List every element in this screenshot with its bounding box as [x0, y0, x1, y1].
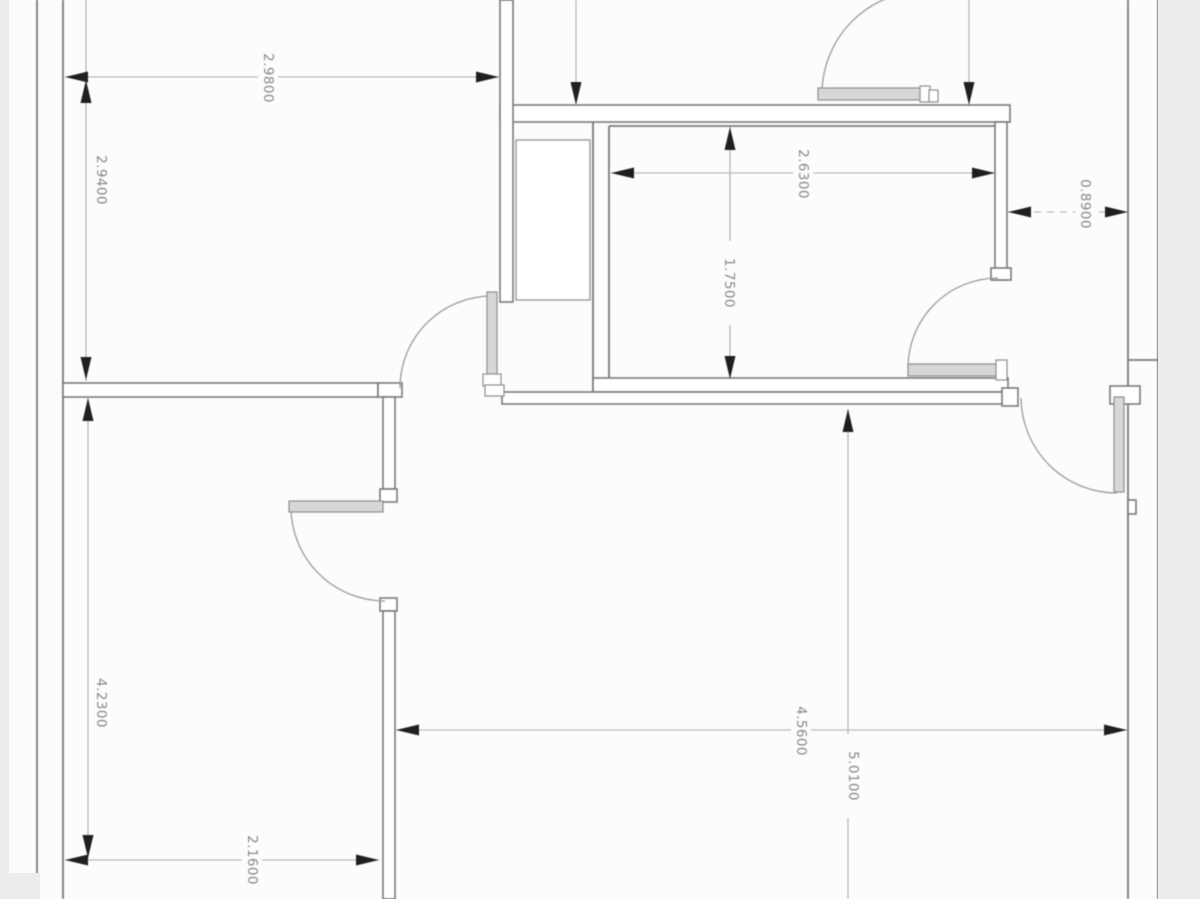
door-bedroom1-hinge-block-1 — [485, 385, 504, 396]
dim-top-room-width-label: 2.9800 — [260, 53, 276, 103]
drawing-background — [0, 0, 1200, 899]
door-bathroom-leaf — [908, 364, 998, 376]
door-bedroom1-hinge-block-0 — [483, 374, 501, 386]
middle-vertical-wall-lower — [383, 611, 395, 899]
dim-bathroom-width-label: 2.6300 — [795, 149, 811, 199]
dim-bedroom2-height-label: 4.2300 — [93, 678, 109, 728]
dim-bathroom-height-label: 1.7500 — [721, 258, 737, 308]
dim-bedroom2-width-label: 2.1600 — [244, 835, 260, 885]
top-vertical-wall — [500, 0, 513, 302]
paper-edge-right — [1158, 0, 1200, 899]
door-bedroom1-leaf — [487, 292, 497, 384]
bathroom-bottom-wall — [593, 378, 1008, 392]
paper-edge-left — [0, 0, 9, 899]
bedroom1-bottom-wall — [63, 383, 378, 397]
door-bedroom2-leaf — [289, 501, 383, 512]
dim-side-gap-label: 0.8900 — [1077, 179, 1093, 229]
corridor-wall-right-jamb — [1002, 388, 1018, 406]
middle-vertical-wall-upper — [383, 397, 395, 489]
bedroom1-door-jamb — [378, 383, 402, 397]
dim-top-room-height-label: 2.9400 — [93, 155, 109, 205]
bathroom-right-wall — [995, 122, 1007, 280]
door-entry-leaf — [1114, 397, 1124, 492]
door-top-right-room-hinge-block-1 — [929, 90, 938, 102]
floor-plan-screenshot: 2.98002.94002.63001.75000.89004.23002.16… — [0, 0, 1200, 899]
bedroom2-door-top-jamb — [380, 489, 397, 502]
corridor-wall — [502, 392, 1016, 404]
door-bathroom-hinge-block-0 — [996, 360, 1007, 380]
floor-plan-canvas: 2.98002.94002.63001.75000.89004.23002.16… — [0, 0, 1200, 899]
dim-living-height-label: 5.0100 — [845, 751, 861, 801]
dim-living-width-label: 4.5600 — [793, 706, 809, 756]
closet-box — [516, 140, 590, 300]
door-top-right-room-leaf — [818, 88, 922, 100]
right-wall-step — [1128, 500, 1136, 514]
top-wall — [500, 105, 1010, 122]
bedroom2-door-bottom-jamb — [380, 598, 397, 611]
paper-edge-bottom-left — [0, 873, 40, 899]
